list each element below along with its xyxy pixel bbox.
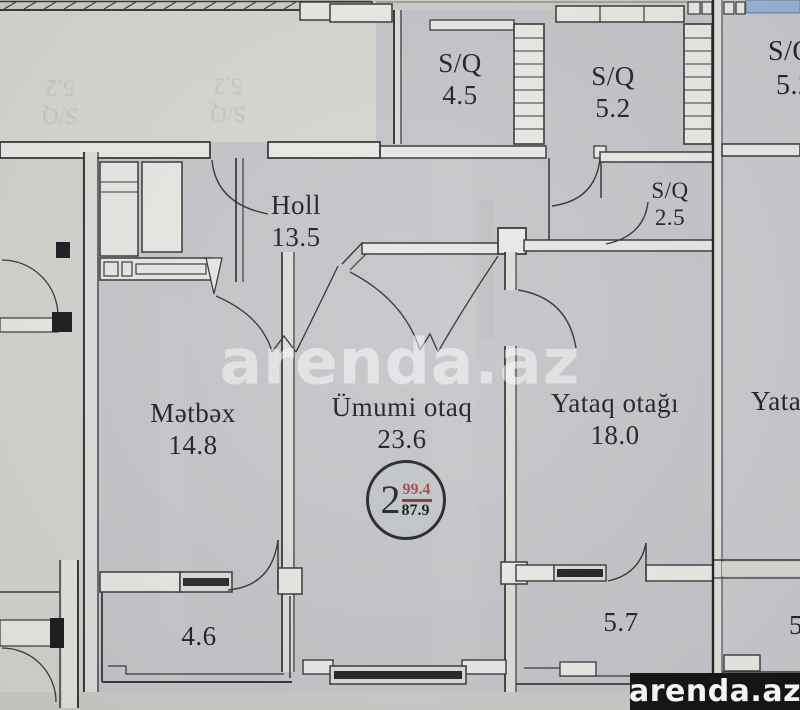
room-label-balcony-right: 5.7: [603, 607, 638, 639]
room-label-holl: Holl 13.5: [271, 190, 321, 254]
room-area: 2.5: [651, 204, 688, 231]
center-watermark: arenda.az: [220, 326, 581, 399]
apartment-area-badge: 2 99.4 87.9: [366, 460, 446, 540]
room-label-sq-45: S/Q 4.5: [438, 48, 482, 112]
area-fraction: 99.4 87.9: [402, 482, 432, 519]
logo-bar: arenda.az: [630, 673, 800, 710]
room-area: 13.5: [271, 222, 321, 254]
room-label-balcony-left: 4.6: [181, 621, 216, 653]
neighbor-sq-area-partial: 5.2: [776, 70, 800, 102]
neighbor-balcony-partial: 5: [789, 610, 800, 641]
room-count: 2: [381, 480, 401, 520]
room-name: S/Q: [591, 61, 635, 93]
room-name: S/Q: [651, 177, 688, 204]
bleedthrough-label: S/Q 5.2: [210, 72, 246, 127]
room-label-umumi-otaq: Ümumi otaq 23.6: [332, 392, 473, 456]
room-area: 5.7: [603, 607, 638, 639]
room-area: 4.6: [181, 621, 216, 653]
room-area: 14.8: [150, 430, 235, 462]
room-name: Holl: [271, 190, 321, 222]
living-area: 87.9: [402, 502, 432, 519]
logo-text: arenda.az: [629, 677, 800, 707]
neighbor-bedroom-partial: Yata: [751, 386, 800, 417]
room-area: 4.5: [438, 80, 482, 112]
room-name: Mətbəx: [150, 398, 235, 430]
room-area: 5.2: [591, 93, 635, 125]
room-label-metbex: Mətbəx 14.8: [150, 398, 235, 462]
room-label-sq-25: S/Q 2.5: [651, 177, 688, 231]
total-area: 99.4: [402, 482, 432, 502]
room-name: S/Q: [438, 48, 482, 80]
room-label-sq-52: S/Q 5.2: [591, 61, 635, 125]
bleedthrough-label: S/Q 5.2: [42, 74, 78, 129]
floorplan-photo: S/Q 4.5 S/Q 5.2 S/Q 2.5 Holl 13.5 Mətbəx…: [0, 0, 800, 710]
neighbor-sq-name-partial: S/Q: [768, 36, 800, 68]
room-area: 18.0: [551, 420, 679, 452]
room-area: 23.6: [332, 424, 473, 456]
